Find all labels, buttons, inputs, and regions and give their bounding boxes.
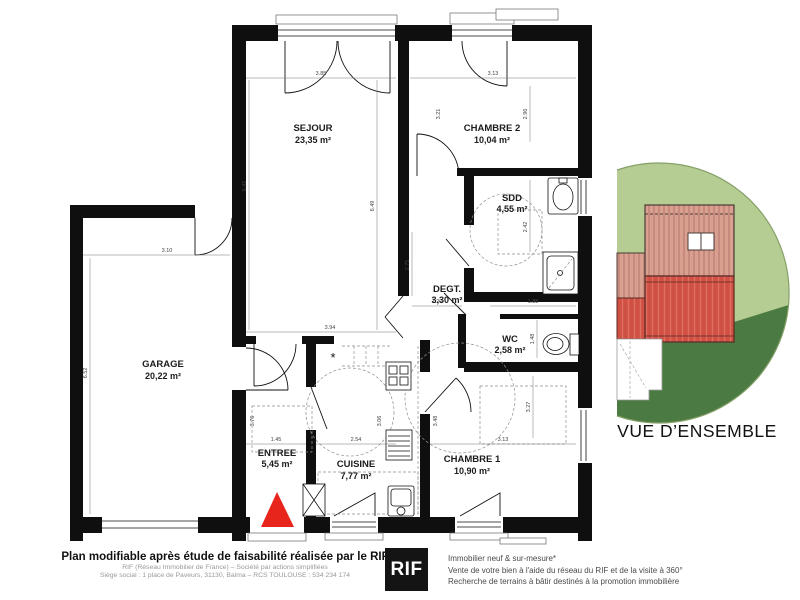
dim-label: 2.96 bbox=[523, 109, 529, 120]
footer-services-block: Immobilier neuf & sur-mesure* Vente de v… bbox=[448, 553, 788, 588]
room-area-cuisine: 7,77 m² bbox=[340, 471, 371, 481]
dim-label: 1.45 bbox=[271, 437, 282, 443]
dim-label: 3.10 bbox=[162, 248, 173, 254]
footer-legal-block: Plan modifiable après étude de faisabili… bbox=[52, 551, 398, 579]
room-label-entree: ENTREE bbox=[258, 448, 297, 459]
note-star: * bbox=[330, 350, 335, 365]
hob-icon bbox=[386, 362, 411, 390]
dim-label: 3.06 bbox=[377, 416, 383, 427]
room-label-garage: GARAGE bbox=[142, 359, 184, 370]
dim-label: 3.13 bbox=[498, 437, 509, 443]
dim-label: 3.13 bbox=[488, 71, 499, 77]
toilet-icon bbox=[543, 334, 579, 356]
dim-label: 3.76 bbox=[250, 416, 256, 427]
dim-label: 6.49 bbox=[370, 201, 376, 212]
room-area-degt: 3,30 m² bbox=[431, 295, 462, 305]
room-label-cuisine: CUISINE bbox=[337, 459, 376, 470]
rif-logo-text: RIF bbox=[390, 559, 422, 581]
wall-openings bbox=[102, 25, 592, 533]
dim-label: 1.48 bbox=[530, 334, 536, 345]
rif-logo: RIF bbox=[385, 548, 428, 591]
dim-label: 2.54 bbox=[351, 437, 362, 443]
dim-label: 3.27 bbox=[526, 402, 532, 413]
room-area-chambre1: 10,90 m² bbox=[454, 466, 490, 476]
dim-label: 3.21 bbox=[436, 109, 442, 120]
room-label-chambre2: CHAMBRE 2 bbox=[464, 123, 520, 134]
room-area-entree: 5,45 m² bbox=[261, 459, 292, 469]
room-area-sdd: 4,55 m² bbox=[496, 204, 527, 214]
dim-label: 2.75 bbox=[405, 260, 411, 271]
kitchen-sink-icon bbox=[388, 486, 414, 516]
dim-label: 1.88 bbox=[528, 299, 539, 305]
dim-label: 6.52 bbox=[83, 368, 89, 379]
footer-service-2: Vente de votre bien à l'aide du réseau d… bbox=[448, 565, 788, 577]
dim-label: 3.48 bbox=[433, 416, 439, 427]
footer-title: Plan modifiable après étude de faisabili… bbox=[52, 551, 398, 563]
page: 3.85 3.13 6.41 6.49 3.10 6.52 2.96 3.21 … bbox=[0, 0, 800, 600]
floor-plan-drawing: 3.85 3.13 6.41 6.49 3.10 6.52 2.96 3.21 … bbox=[0, 0, 800, 545]
footer-address-line: Siège social : 1 place de Paveurs, 31130… bbox=[52, 572, 398, 579]
dim-label: 3.94 bbox=[325, 325, 336, 331]
room-label-wc: WC bbox=[502, 334, 518, 345]
windows bbox=[248, 9, 586, 544]
bathroom-sink-icon bbox=[548, 178, 578, 214]
room-label-degt: DEGT. bbox=[433, 284, 461, 295]
room-area-chambre2: 10,04 m² bbox=[474, 135, 510, 145]
room-area-garage: 20,22 m² bbox=[145, 371, 181, 381]
room-label-sdd: SDD bbox=[502, 193, 522, 204]
shower-icon bbox=[543, 252, 578, 294]
water-heater-icon bbox=[303, 484, 325, 516]
appliance-icon bbox=[386, 430, 412, 460]
room-area-wc: 2,58 m² bbox=[494, 345, 525, 355]
dim-label: 6.41 bbox=[242, 181, 248, 192]
footer-service-1: Immobilier neuf & sur-mesure* bbox=[448, 553, 788, 565]
overview-caption: VUE D’ENSEMBLE bbox=[617, 421, 777, 441]
walls bbox=[70, 25, 592, 541]
room-label-chambre1: CHAMBRE 1 bbox=[444, 454, 501, 465]
room-label-sejour: SEJOUR bbox=[293, 123, 332, 134]
footer-company-line: RIF (Réseau Immobilier de France) – Soci… bbox=[52, 564, 398, 571]
room-area-sejour: 23,35 m² bbox=[295, 135, 331, 145]
footer-service-3: Recherche de terrains à bâtir destinés à… bbox=[448, 576, 788, 588]
entrance-arrow bbox=[261, 492, 294, 527]
footer: Plan modifiable après étude de faisabili… bbox=[0, 545, 800, 600]
dim-label: 2.42 bbox=[523, 222, 529, 233]
dim-label: 3.85 bbox=[316, 71, 327, 77]
